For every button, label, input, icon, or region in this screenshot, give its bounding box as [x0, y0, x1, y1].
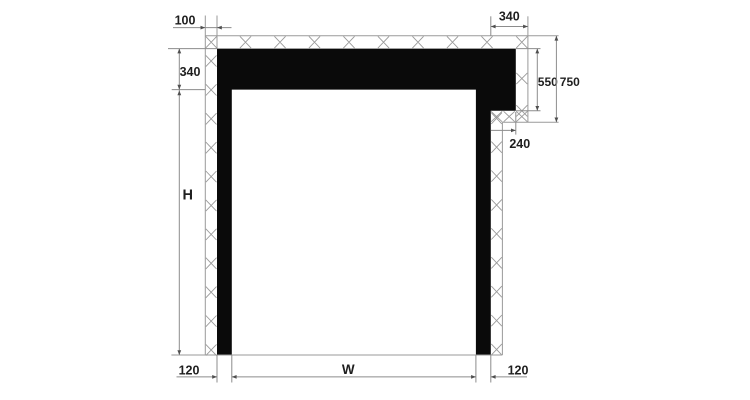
svg-text:340: 340 — [499, 9, 520, 23]
svg-text:340: 340 — [180, 65, 201, 79]
svg-text:120: 120 — [179, 363, 200, 377]
svg-text:750: 750 — [560, 75, 580, 89]
svg-text:120: 120 — [508, 363, 529, 377]
svg-text:550: 550 — [538, 75, 558, 89]
svg-text:240: 240 — [509, 137, 530, 151]
svg-text:100: 100 — [175, 14, 196, 28]
svg-text:W: W — [342, 362, 355, 377]
svg-text:H: H — [183, 187, 193, 203]
